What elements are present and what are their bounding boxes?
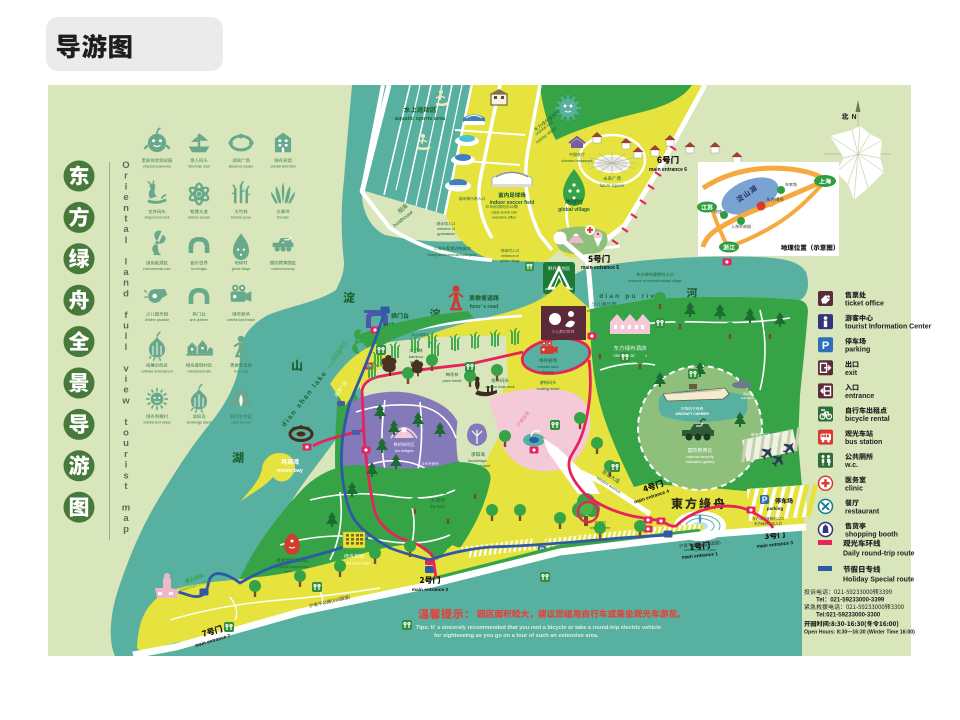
svg-text:Daily round-trip route: Daily round-trip route (843, 551, 915, 558)
svg-text:O: O (122, 160, 129, 171)
svg-text:exit: exit (845, 370, 858, 377)
svg-text:m: m (122, 502, 130, 513)
svg-text:u: u (123, 321, 129, 332)
svg-text:e: e (123, 192, 128, 203)
svg-text:the lawn: the lawn (430, 504, 446, 509)
svg-text:s: s (123, 470, 128, 481)
svg-text:main entrance 2: main entrance 2 (412, 587, 449, 593)
svg-text:shopping booth: shopping booth (845, 532, 898, 539)
svg-text:u: u (123, 438, 129, 449)
svg-text:a: a (123, 513, 129, 524)
svg-text:i: i (125, 181, 128, 192)
svg-text:for sightseeing as you go: for sightseeing as you go on a tour of s… (434, 633, 599, 639)
svg-text:bamboo grove: bamboo grove (231, 216, 252, 220)
svg-text:P: P (762, 496, 768, 505)
svg-text:the lawn: the lawn (277, 216, 289, 220)
svg-text:arch platform: arch platform (190, 318, 209, 322)
svg-text:dragon boat dock: dragon boat dock (145, 216, 170, 220)
svg-text:p: p (123, 524, 129, 535)
svg-text:global village: global village (500, 259, 520, 263)
svg-text:fun bridges: fun bridges (395, 449, 414, 453)
svg-text:boating wharf: boating wharf (537, 387, 561, 391)
svg-text:executive office: executive office (492, 216, 516, 220)
svg-text:r: r (124, 171, 128, 182)
svg-text:Holiday Special route: Holiday Special route (843, 577, 914, 584)
svg-text:hero' s road: hero' s road (470, 304, 498, 310)
svg-text:environmental zone: environmental zone (143, 267, 171, 271)
svg-text:ticket office: ticket office (845, 301, 884, 308)
svg-text:main entrance 5: main entrance 5 (581, 265, 619, 271)
svg-text:wisdom avenue: wisdom avenue (188, 216, 210, 220)
svg-text:national security: national security (686, 455, 714, 459)
svg-text:entrance of: entrance of (437, 227, 455, 231)
svg-text:moon bay: moon bay (277, 468, 304, 474)
svg-text:clinic: clinic (845, 485, 863, 492)
svg-text:oriental land village: oriental land village (143, 421, 171, 425)
svg-text:w.c.: w.c. (844, 462, 858, 469)
svg-text:fisherman dock: fisherman dock (188, 165, 210, 169)
svg-text:oriental land villa: oriental land villa (187, 369, 211, 373)
svg-text:parking: parking (845, 347, 870, 354)
svg-text:dragon boat dock: dragon boat dock (485, 385, 514, 389)
svg-text:aquatic sports area: aquatic sports area (395, 116, 446, 122)
svg-text:global village: global village (558, 207, 590, 213)
svg-text:l: l (125, 256, 128, 267)
svg-text:v: v (123, 363, 129, 374)
svg-text:N: N (851, 114, 856, 121)
svg-text:l: l (125, 342, 128, 353)
svg-text:main entrance 6: main entrance 6 (649, 167, 687, 173)
svg-text:knowledge-: knowledge- (468, 459, 488, 463)
svg-text:bus station: bus station (845, 439, 882, 446)
svg-text:fun bridges: fun bridges (191, 267, 207, 271)
svg-text:restaurant: restaurant (845, 508, 880, 515)
svg-text:entrance of: entrance of (502, 254, 519, 258)
svg-text:P: P (822, 340, 829, 352)
svg-text:Tel：021-59233000-3399: Tel：021-59233000-3399 (816, 597, 885, 604)
svg-text:d: d (123, 288, 129, 299)
svg-text:Submarine: Submarine (741, 396, 756, 400)
svg-text:Tel:021-59233000-3300: Tel:021-59233000-3300 (816, 613, 881, 619)
svg-text:a: a (123, 224, 129, 235)
svg-text:l: l (125, 235, 128, 246)
svg-text:n: n (123, 203, 129, 214)
svg-text:chinese restaurant: chinese restaurant (561, 159, 593, 163)
svg-text:oriental land theatre: oriental land theatre (227, 318, 255, 322)
svg-text:cable tennis hall: cable tennis hall (491, 211, 516, 215)
svg-text:bicycle rental: bicycle rental (845, 416, 890, 423)
svg-text:gymnasium: gymnasium (437, 232, 455, 236)
svg-text:children paradise: children paradise (145, 318, 170, 322)
svg-text:i: i (125, 374, 128, 385)
svg-text:future square: future square (600, 183, 625, 188)
svg-text:oriental land hotel: oriental land hotel (270, 165, 295, 169)
svg-text:e: e (123, 385, 128, 396)
svg-text:theatre: theatre (542, 370, 554, 374)
svg-text:camp survival: camp survival (231, 421, 251, 425)
svg-text:education gallery: education gallery (686, 460, 715, 464)
svg-text:shanghaishixuanchuanbudangxiao: shanghaishixuanchuanbudangxiao (427, 253, 476, 257)
svg-text:knowledge island: knowledge island (187, 421, 212, 425)
svg-text:Tips: It' s sincerely recom: Tips: It' s sincerely recommended that y… (416, 625, 661, 631)
svg-text:software development: software development (141, 369, 172, 373)
svg-text:i: i (125, 460, 128, 471)
svg-text:global village: global village (232, 267, 251, 271)
svg-text:n: n (123, 278, 129, 289)
svg-text:parking: parking (767, 506, 784, 511)
svg-text:r: r (124, 449, 128, 460)
svg-text:physical experience: physical experience (143, 165, 171, 169)
svg-text:lakeshore square: lakeshore square (229, 165, 254, 169)
svg-text:o: o (123, 428, 129, 439)
svg-text:w: w (121, 395, 130, 406)
svg-text:hero road: hero road (234, 369, 248, 373)
svg-text:Open Hours: 8:30—16:30 (Winter: Open Hours: 8:30—16:30 (Winter Time 16:0… (804, 630, 915, 636)
svg-text:oriental land: oriental land (538, 365, 559, 369)
svg-text:entrance of oriental holiday v: entrance of oriental holiday village (629, 279, 682, 283)
svg-text:AIRCRAFT CARRIER: AIRCRAFT CARRIER (675, 412, 709, 416)
svg-text:entrance: entrance (845, 393, 874, 400)
svg-text:l: l (125, 331, 128, 342)
svg-text:plum forest: plum forest (443, 379, 463, 383)
svg-text:national security: national security (271, 267, 294, 271)
svg-text:a: a (123, 267, 129, 278)
svg-text:tourist Information Center: tourist Information Center (845, 324, 932, 331)
